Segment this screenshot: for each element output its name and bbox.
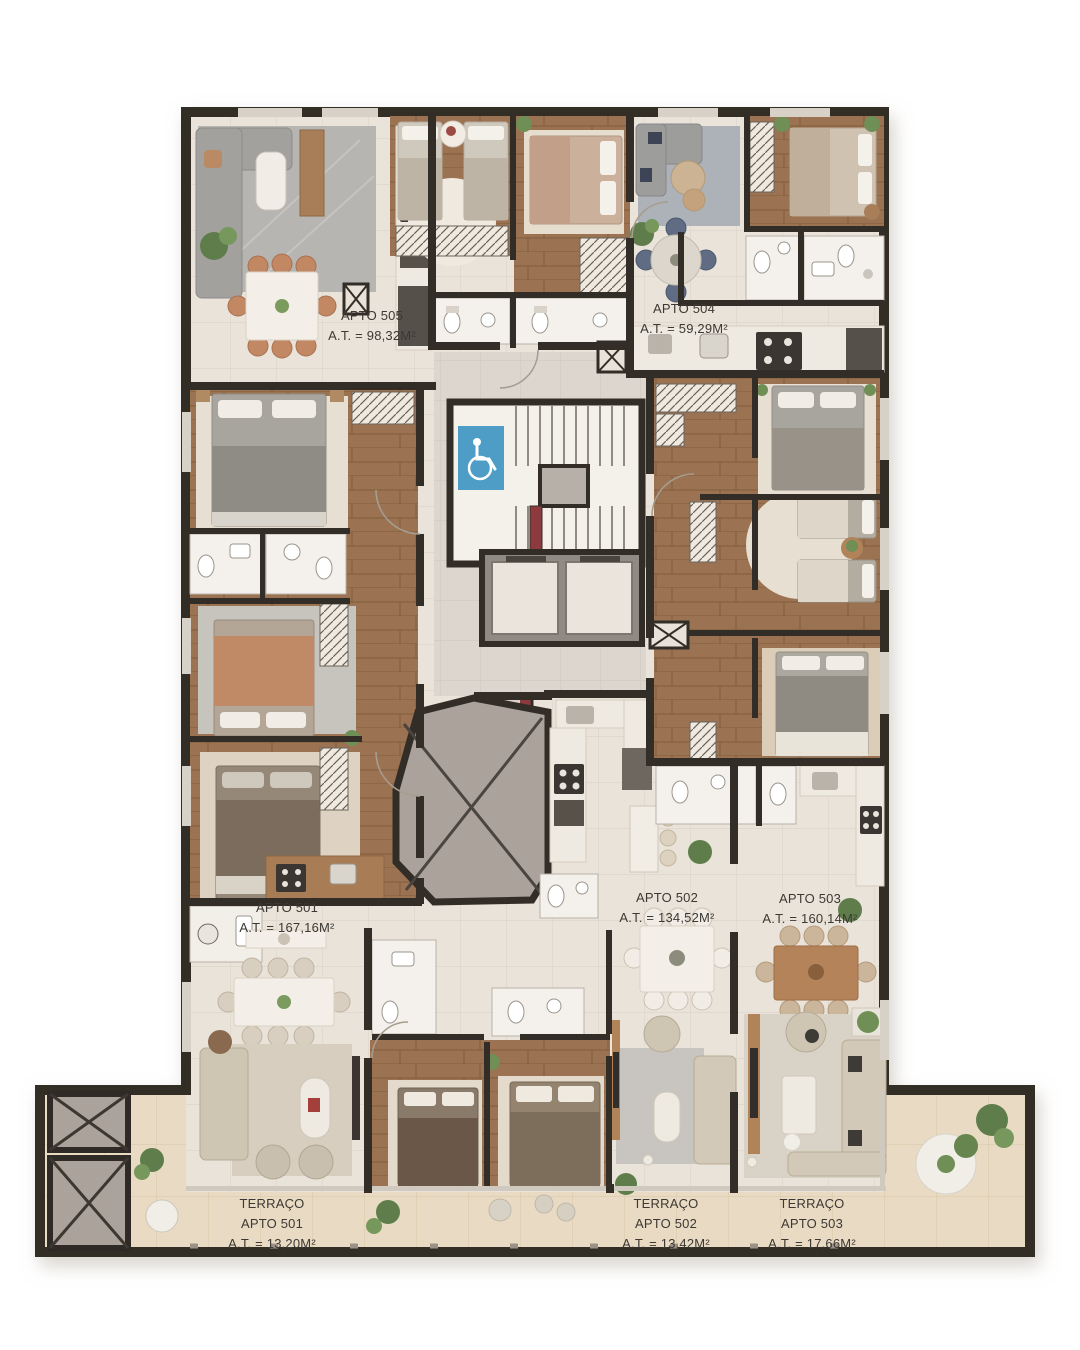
unit-area: A.T. = 160,14M² — [762, 909, 857, 929]
unit-name: APTO 502 — [619, 888, 714, 908]
terrace-title: TERRAÇO — [622, 1194, 710, 1214]
label-terraco-503: TERRAÇO APTO 503 A.T. = 17,66M² — [768, 1194, 856, 1254]
unit-name: APTO 504 — [640, 299, 728, 319]
tv — [352, 1056, 360, 1140]
terrace-unit: APTO 501 — [228, 1214, 316, 1234]
terrace-area: A.T. = 17,66M² — [768, 1234, 856, 1254]
shaft-box — [50, 1158, 128, 1248]
terrace-title: TERRAÇO — [228, 1194, 316, 1214]
unit-area: A.T. = 98,32M² — [328, 326, 416, 346]
terrace-title: TERRAÇO — [768, 1194, 856, 1214]
tv — [613, 1052, 619, 1108]
armchair — [786, 1012, 826, 1052]
elevator-cab — [492, 562, 558, 634]
floor-plan: APTO 501 A.T. = 167,16M² APTO 502 A.T. =… — [0, 0, 1080, 1350]
coffee-table — [671, 161, 705, 195]
fire-hose-cabinet — [530, 506, 542, 556]
rug — [232, 1044, 352, 1176]
elevator-cab — [566, 562, 632, 634]
terrace-area: A.T. = 13,20M² — [228, 1234, 316, 1254]
armchair — [256, 1145, 290, 1179]
armchair — [644, 1016, 680, 1052]
bathrooms-501 — [190, 534, 346, 594]
living — [744, 1008, 886, 1178]
stair-core — [540, 466, 588, 506]
armchair — [299, 1145, 333, 1179]
label-apto-503: APTO 503 A.T. = 160,14M² — [762, 889, 857, 929]
island — [630, 806, 658, 872]
bathrooms-504 — [746, 236, 884, 300]
label-apto-505: APTO 505 A.T. = 98,32M² — [328, 306, 416, 346]
wardrobe — [656, 414, 684, 446]
bedroom — [388, 1080, 482, 1186]
unit-name: APTO 505 — [328, 306, 416, 326]
wardrobe — [580, 238, 628, 296]
wardrobe — [750, 122, 774, 192]
side-table — [208, 1030, 232, 1054]
label-terraco-501: TERRAÇO APTO 501 A.T. = 13,20M² — [228, 1194, 316, 1254]
label-apto-502: APTO 502 A.T. = 134,52M² — [619, 888, 714, 928]
bathrooms-505 — [432, 298, 628, 344]
terrace-unit: APTO 503 — [768, 1214, 856, 1234]
wardrobe — [656, 384, 736, 412]
terrace-unit: APTO 502 — [622, 1214, 710, 1234]
unit-area: A.T. = 167,16M² — [239, 918, 334, 938]
unit-area: A.T. = 134,52M² — [619, 908, 714, 928]
tv — [750, 1048, 758, 1118]
label-apto-501: APTO 501 A.T. = 167,16M² — [239, 898, 334, 938]
wardrobe — [320, 604, 348, 666]
label-apto-504: APTO 504 A.T. = 59,29M² — [640, 299, 728, 339]
label-terraco-502: TERRAÇO APTO 502 A.T. = 13,42M² — [622, 1194, 710, 1254]
terrace-area: A.T. = 13,42M² — [622, 1234, 710, 1254]
accessibility-icon — [458, 426, 504, 490]
sofa — [694, 1056, 736, 1164]
bed — [214, 620, 314, 736]
bathrooms-503 — [656, 766, 796, 824]
coffee-table — [782, 1076, 816, 1134]
wardrobe — [352, 392, 414, 424]
coffee-table — [654, 1092, 680, 1142]
pouf — [489, 1199, 511, 1221]
elevators — [482, 552, 642, 644]
bed — [212, 394, 326, 526]
wardrobe — [320, 748, 348, 810]
shaft-box — [50, 1094, 128, 1150]
unit-name: APTO 501 — [239, 898, 334, 918]
lounge-chair — [146, 1200, 178, 1232]
bed — [772, 386, 864, 490]
kitchen — [266, 856, 384, 900]
unit-name: APTO 503 — [762, 889, 857, 909]
unit-area: A.T. = 59,29M² — [640, 319, 728, 339]
wardrobe — [690, 502, 716, 562]
twin-bedroom — [396, 121, 508, 266]
wardrobe — [396, 226, 508, 256]
floor-plan-drawing — [0, 0, 1080, 1350]
